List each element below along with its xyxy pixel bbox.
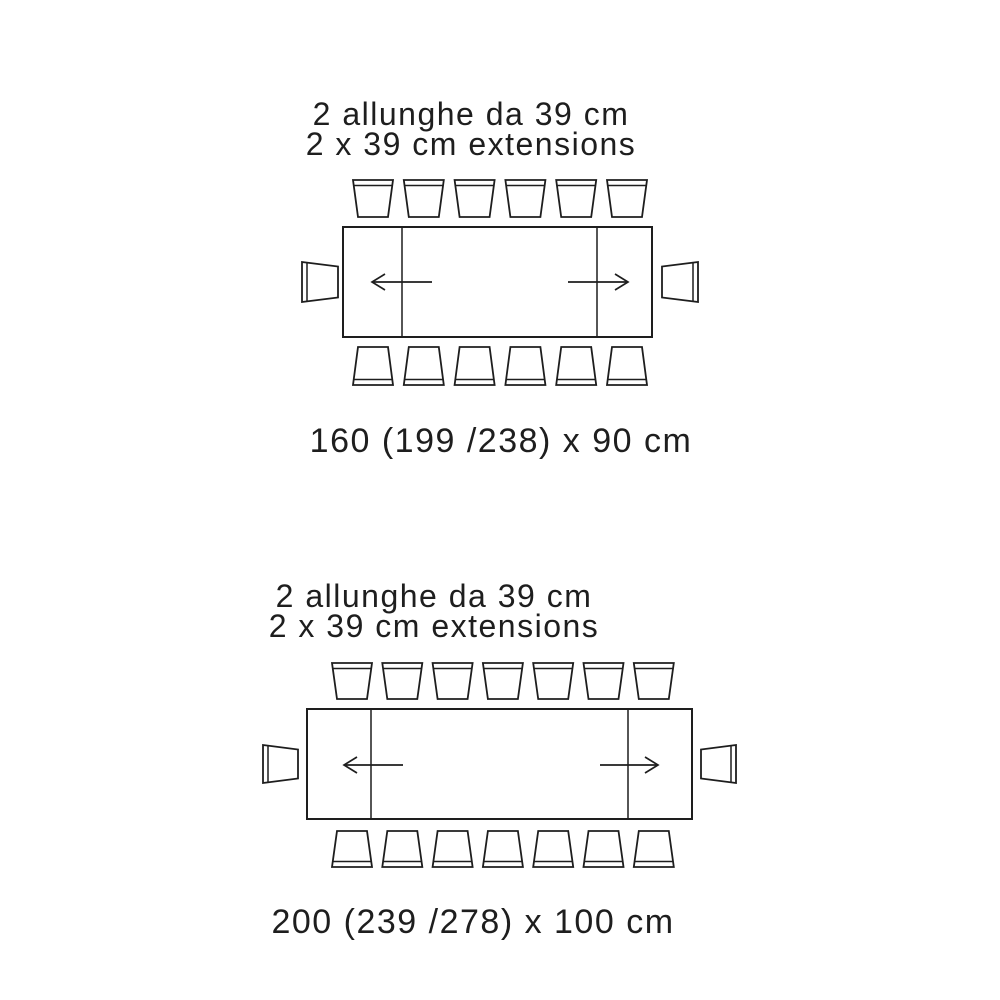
drawing-sheet: 2 allunghe da 39 cm 2 x 39 cm extensions… [0,0,1000,1000]
diagram-200-title-english: 2 x 39 cm extensions [269,611,600,641]
chair-bottom [332,831,372,867]
chair-top [556,180,596,217]
chair-bottom [607,347,647,385]
chair-right-end [701,745,736,783]
chair-top [332,663,372,699]
diagram-160-drawing [0,160,1000,410]
diagram-200-title-italian: 2 allunghe da 39 cm [269,581,600,611]
chair-top [433,663,473,699]
chair-top [634,663,674,699]
diagram-200-title: 2 allunghe da 39 cm 2 x 39 cm extensions [269,581,600,641]
diagram-160-size-label: 160 (199 /238) x 90 cm [310,423,693,459]
extension-arrow [600,757,658,773]
chair-bottom [584,831,624,867]
extension-arrow [568,274,628,290]
table-top [307,709,692,819]
diagram-160-title-english: 2 x 39 cm extensions [306,129,637,159]
diagram-200-drawing [0,650,1000,880]
chair-top [455,180,495,217]
chair-bottom [483,831,523,867]
chair-bottom [634,831,674,867]
diagram-200-size-label: 200 (239 /278) x 100 cm [271,904,674,940]
diagram-160-title: 2 allunghe da 39 cm 2 x 39 cm extensions [306,99,637,159]
extension-arrow [344,757,403,773]
chair-top [533,663,573,699]
chair-bottom [556,347,596,385]
chair-top [607,180,647,217]
chair-bottom [505,347,545,385]
chair-left-end [263,745,298,783]
chair-top [584,663,624,699]
chair-bottom [404,347,444,385]
chair-bottom [455,347,495,385]
diagram-160-title-italian: 2 allunghe da 39 cm [306,99,637,129]
chair-bottom [353,347,393,385]
chair-bottom [433,831,473,867]
chair-top [505,180,545,217]
chair-left-end [302,262,338,302]
chair-top [483,663,523,699]
chair-top [353,180,393,217]
chair-bottom [533,831,573,867]
chair-top [404,180,444,217]
chair-bottom [382,831,422,867]
chair-right-end [662,262,698,302]
chair-top [382,663,422,699]
